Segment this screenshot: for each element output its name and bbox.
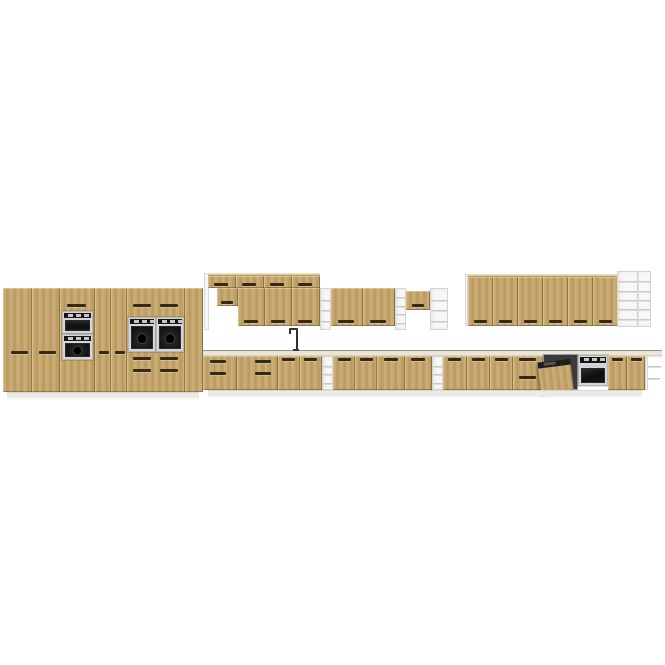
handle-groove	[631, 358, 642, 361]
handle-groove	[244, 320, 258, 323]
end-shelf-line-2	[648, 378, 660, 380]
handle-groove	[499, 320, 512, 323]
handle-groove	[255, 360, 271, 363]
tall-cabinet-right-door	[185, 288, 203, 392]
open-shelf-column-1	[320, 288, 331, 330]
kitchen-set-product-render	[0, 0, 665, 665]
handle-groove	[524, 320, 537, 323]
built-in-oven-right	[578, 355, 608, 386]
built-in-oven-left-b	[156, 317, 184, 352]
wall-run-door-6	[593, 277, 618, 326]
wall-top-door-2	[236, 276, 264, 288]
open-shelf-base-1	[322, 356, 333, 390]
handle-groove	[448, 358, 461, 361]
wall-run-door-5	[568, 277, 593, 326]
handle-groove	[270, 283, 284, 286]
handle-groove	[99, 351, 109, 354]
handle-groove	[519, 376, 536, 379]
handle-groove	[549, 320, 562, 323]
base-sink-door-1	[278, 356, 300, 390]
built-in-microwave	[62, 311, 93, 334]
handle-groove	[338, 320, 354, 323]
built-in-oven-left-a	[128, 317, 156, 352]
handle-groove	[298, 320, 312, 323]
handle-groove	[384, 358, 398, 361]
handle-groove	[210, 360, 226, 363]
handle-groove	[271, 320, 285, 323]
tall-block-plinth	[7, 392, 199, 398]
base-cabinet-door-3	[333, 356, 355, 390]
handle-groove	[11, 351, 28, 354]
base-sink-door-2	[300, 356, 322, 390]
small-wall-cabinet-door	[406, 291, 430, 310]
base-cabinet-door-6	[405, 356, 432, 390]
handle-groove	[67, 304, 86, 307]
dishwasher-open-door	[543, 354, 578, 390]
handle-groove	[210, 372, 226, 375]
base-cabinet-door-10	[608, 356, 627, 390]
handle-groove	[338, 358, 351, 361]
handle-groove	[282, 358, 295, 361]
handle-groove	[160, 369, 178, 372]
wall-run-door-1	[468, 277, 493, 326]
handle-groove	[221, 301, 233, 304]
handle-groove	[133, 304, 151, 307]
wall-run-door-2	[493, 277, 518, 326]
base-cabinet-door-5	[377, 356, 405, 390]
handle-groove	[412, 304, 424, 307]
tall-cabinet-left-door-1	[3, 288, 32, 392]
tall-cabinet-left-door-2	[32, 288, 60, 392]
dishwasher-door-panel	[537, 358, 574, 393]
open-shelf-tower	[617, 271, 651, 327]
base-cabinet-door-11	[627, 356, 645, 390]
wall-top-door-1	[208, 276, 236, 288]
handle-groove	[39, 351, 56, 354]
handle-groove	[298, 283, 312, 286]
handle-groove	[370, 320, 386, 323]
handle-groove	[160, 357, 178, 360]
tall-cabinet-mid-door-1	[95, 288, 111, 392]
wall-run-door-4	[543, 277, 568, 326]
open-shelf-unit-mid	[430, 288, 448, 330]
base-cabinet-door-4	[355, 356, 377, 390]
base-run-plinth	[208, 390, 642, 396]
open-shelf-column-2	[395, 288, 406, 330]
handle-groove	[242, 283, 256, 286]
handle-groove	[612, 358, 623, 361]
handle-groove	[472, 358, 485, 361]
handle-groove	[160, 304, 178, 307]
tall-cabinet-mid-door-2	[111, 288, 127, 392]
handle-groove	[599, 320, 612, 323]
wall-top-door-3	[264, 276, 292, 288]
handle-groove	[411, 358, 425, 361]
handle-groove	[133, 357, 151, 360]
end-shelf-line-1	[648, 366, 661, 368]
base-cabinet-door-8	[467, 356, 490, 390]
base-cabinet-door-9	[490, 356, 513, 390]
sink-faucet	[289, 328, 300, 351]
handle-groove	[474, 320, 487, 323]
handle-groove	[304, 358, 317, 361]
handle-groove	[574, 320, 587, 323]
open-shelf-base-2	[432, 356, 443, 390]
built-in-oven-tower	[62, 334, 93, 360]
base-cabinet-door-7	[443, 356, 467, 390]
handle-groove	[115, 351, 125, 354]
handle-groove	[519, 358, 536, 361]
wall-run-door-3	[518, 277, 543, 326]
end-shelf-side-panel	[645, 356, 648, 390]
wall-top-door-4	[292, 276, 320, 288]
handle-groove	[255, 372, 271, 375]
handle-groove	[360, 358, 373, 361]
handle-groove	[495, 358, 508, 361]
handle-groove	[133, 369, 151, 372]
handle-groove	[214, 283, 228, 286]
